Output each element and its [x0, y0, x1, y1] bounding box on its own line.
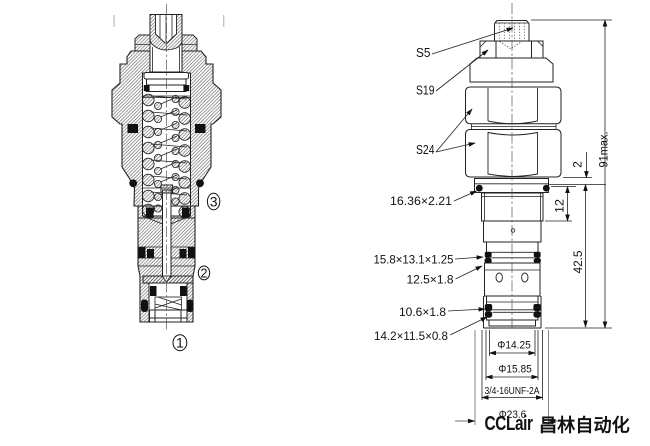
svg-text:16.36×2.21: 16.36×2.21: [390, 196, 452, 208]
svg-text:42.5: 42.5: [573, 251, 585, 274]
svg-text:昌林自动化: 昌林自动化: [539, 415, 630, 436]
svg-text:S24: S24: [416, 142, 435, 157]
svg-text:12: 12: [553, 199, 567, 213]
svg-text:2: 2: [571, 161, 585, 168]
svg-text:10.6×1.8: 10.6×1.8: [399, 307, 446, 319]
svg-text:3: 3: [210, 194, 218, 210]
svg-text:S5: S5: [416, 45, 431, 60]
svg-text:15.8×13.1×1.25: 15.8×13.1×1.25: [374, 255, 454, 267]
svg-text:S19: S19: [416, 83, 435, 98]
svg-text:3/4-16UNF-2A: 3/4-16UNF-2A: [485, 385, 540, 397]
svg-text:91max.: 91max.: [599, 132, 611, 168]
svg-text:Φ14.25: Φ14.25: [497, 340, 531, 352]
svg-text:Φ15.85: Φ15.85: [498, 364, 532, 376]
svg-text:CCLair: CCLair: [485, 412, 533, 435]
svg-text:14.2×11.5×0.8: 14.2×11.5×0.8: [374, 331, 448, 343]
svg-text:1: 1: [176, 335, 184, 351]
svg-text:12.5×1.8: 12.5×1.8: [407, 275, 454, 287]
svg-text:2: 2: [201, 267, 208, 281]
